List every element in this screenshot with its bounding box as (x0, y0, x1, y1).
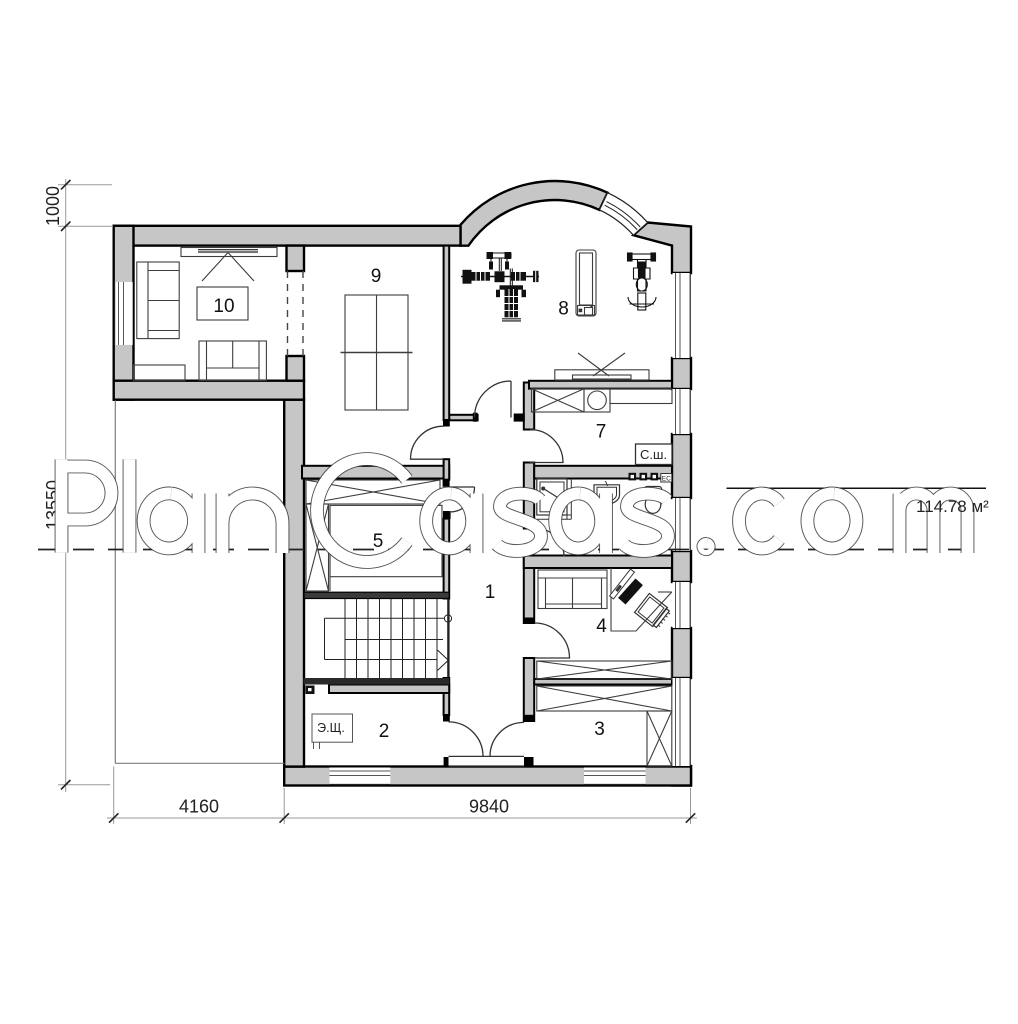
svg-text:5: 5 (373, 531, 384, 552)
svg-text:7: 7 (596, 422, 607, 443)
svg-text:9: 9 (371, 266, 382, 287)
svg-text:3: 3 (594, 719, 605, 740)
svg-text:4: 4 (596, 616, 607, 637)
svg-text:4160: 4160 (179, 797, 219, 817)
svg-text:2: 2 (379, 721, 390, 742)
svg-text:EC: EC (662, 475, 671, 482)
svg-text:Э.Щ.: Э.Щ. (317, 721, 345, 735)
svg-text:114.78 м²: 114.78 м² (916, 497, 989, 516)
svg-text:10: 10 (213, 296, 234, 317)
svg-text:9840: 9840 (469, 797, 509, 817)
svg-text:8: 8 (558, 299, 569, 320)
svg-text:1000: 1000 (43, 186, 63, 226)
svg-text:1: 1 (485, 582, 496, 603)
svg-text:С.ш.: С.ш. (640, 447, 667, 462)
